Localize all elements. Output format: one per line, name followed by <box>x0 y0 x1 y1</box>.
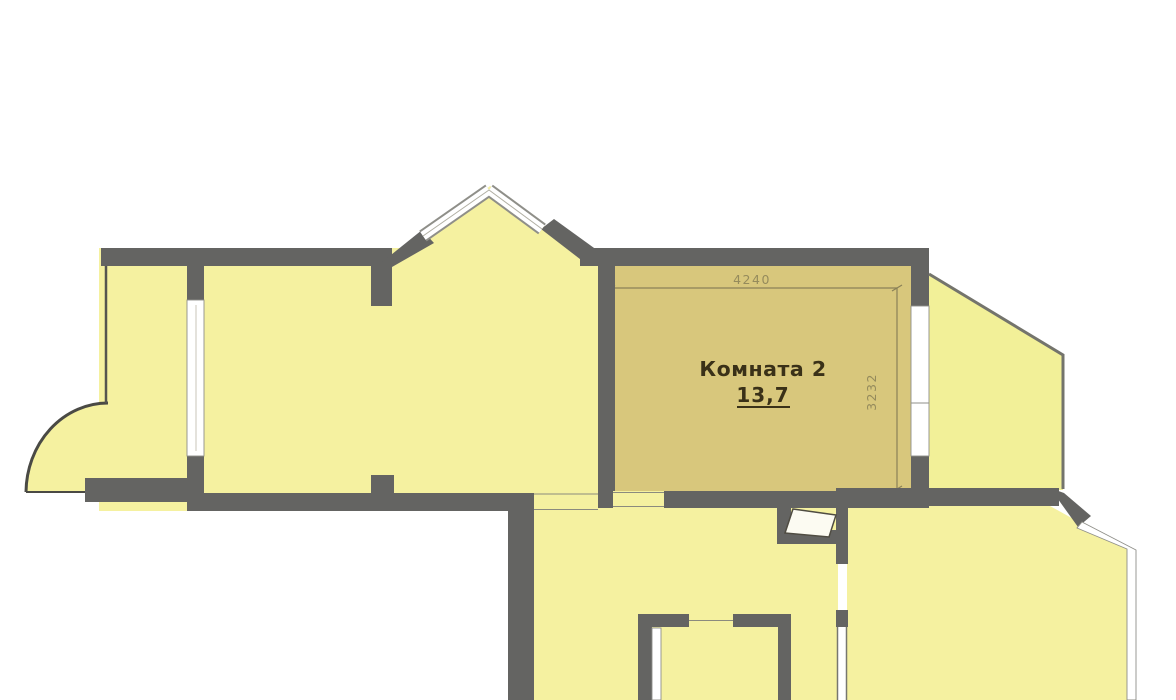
wall-segment <box>836 610 848 627</box>
threshold <box>534 493 598 511</box>
wall-segment <box>911 248 929 306</box>
wall-segment <box>598 250 615 508</box>
room-2-door-opening <box>613 491 664 508</box>
wall-segment <box>836 488 1059 506</box>
floor-plan-image: 4240 3232 Комната 2 13,7 <box>0 0 1176 700</box>
lower-right-room <box>847 506 1127 700</box>
floor-plan-page: 4240 3232 Комната 2 13,7 <box>0 0 1176 700</box>
wall-segment <box>778 627 791 700</box>
wall-segment <box>371 475 394 494</box>
height-dimension-label: 3232 <box>864 373 879 411</box>
room-2-area-value: 13,7 <box>736 383 789 407</box>
room-2-balcony-window <box>911 306 929 456</box>
width-dimension-label: 4240 <box>733 272 771 287</box>
door-leaf-open <box>652 628 661 700</box>
room-2-name-label: Комната 2 <box>699 357 826 381</box>
wall-segment <box>85 478 189 502</box>
balcony-right <box>929 274 1063 490</box>
wall-segment <box>371 266 392 306</box>
wall-segment <box>187 266 204 300</box>
hall-door-opening <box>534 493 598 511</box>
wall-segment <box>101 248 392 266</box>
wall-segment <box>638 614 652 700</box>
wall-segment <box>508 504 534 700</box>
door-leaf <box>785 509 836 537</box>
left-wing-room <box>99 248 615 511</box>
wall-segment <box>580 248 928 266</box>
bottom-partition-opening <box>689 614 733 627</box>
wall-segment <box>187 493 534 511</box>
threshold <box>613 491 664 508</box>
